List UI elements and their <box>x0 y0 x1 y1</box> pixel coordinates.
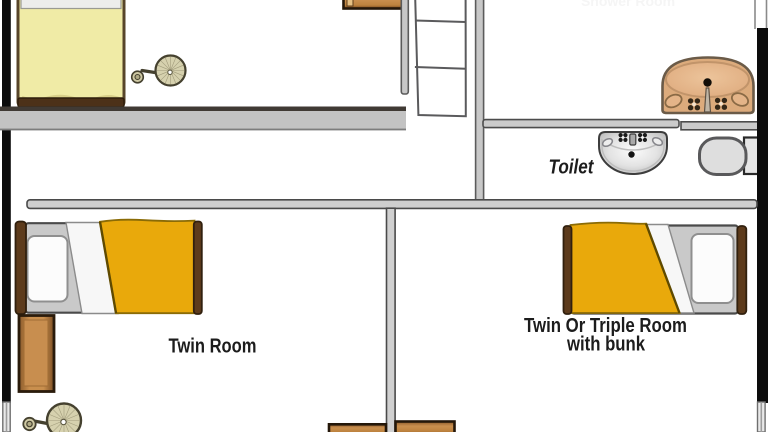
svg-text:Twin Room: Twin Room <box>169 336 257 358</box>
svg-text:Toilet: Toilet <box>549 157 595 179</box>
svg-text:with bunk: with bunk <box>566 334 646 356</box>
svg-text:Shower Room: Shower Room <box>581 0 675 9</box>
